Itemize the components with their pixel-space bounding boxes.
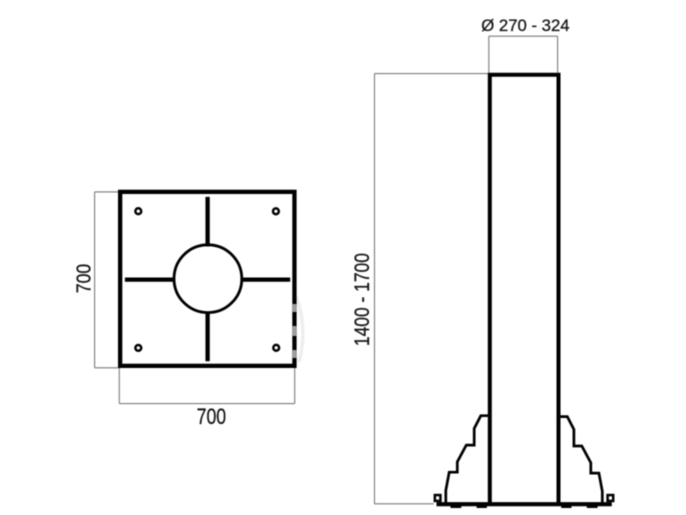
svg-text:Ø 270 - 324: Ø 270 - 324 bbox=[481, 16, 569, 35]
svg-text:700: 700 bbox=[197, 404, 227, 429]
svg-text:1400 - 1700: 1400 - 1700 bbox=[351, 253, 374, 346]
svg-text:700: 700 bbox=[74, 264, 96, 294]
